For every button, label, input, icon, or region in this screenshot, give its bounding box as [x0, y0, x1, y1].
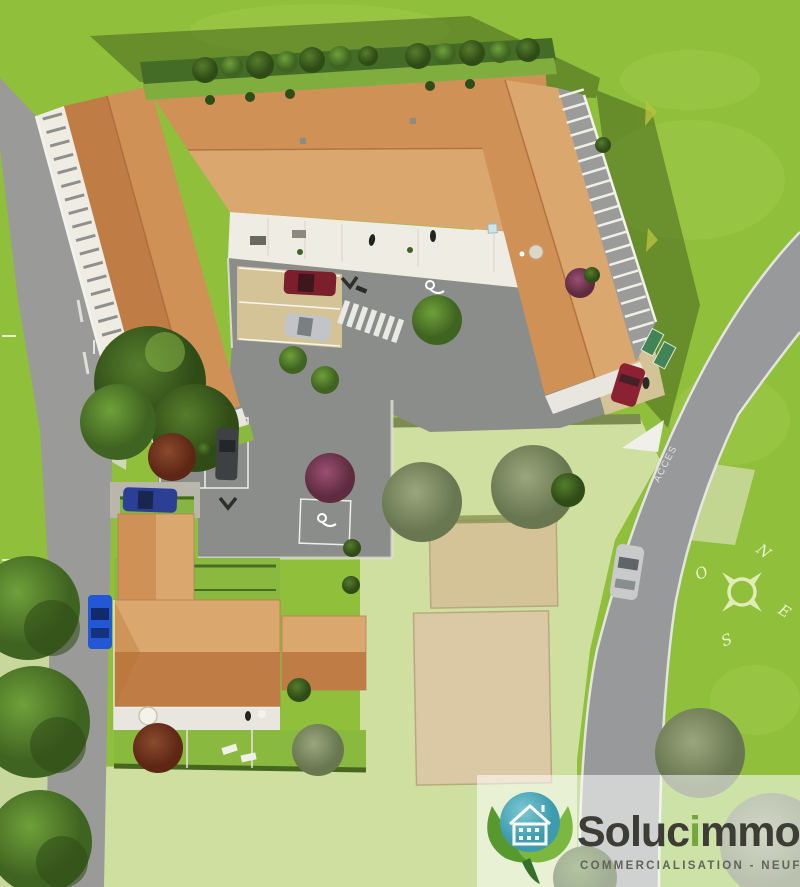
- tree-red: [148, 433, 196, 481]
- bush: [342, 576, 360, 594]
- logo-overlay: Solucimmo COMMERCIALISATION - NEUF: [477, 775, 800, 887]
- tree-olive: [382, 462, 462, 542]
- plot-rectangles: [414, 514, 558, 785]
- car-blue: [88, 595, 112, 649]
- tree-purple: [305, 453, 355, 503]
- roadside-trees-west: [0, 556, 92, 887]
- bush: [197, 442, 213, 458]
- car-blue-dark: [123, 487, 178, 513]
- brand-name: Solucimmo: [577, 808, 800, 856]
- tree: [412, 295, 462, 345]
- car-red-courtyard: [283, 270, 336, 297]
- tree: [287, 678, 311, 702]
- bush: [343, 539, 361, 557]
- tree: [279, 346, 307, 374]
- person: [643, 377, 650, 389]
- site-plan-svg: ACCES: [0, 0, 800, 887]
- person: [430, 230, 436, 242]
- tree-olive: [292, 724, 344, 776]
- bush: [595, 137, 611, 153]
- parasol-icon: [529, 245, 543, 259]
- bush: [584, 267, 600, 283]
- tree-olive: [551, 473, 585, 507]
- car-dark-slot: [215, 428, 239, 481]
- brand-tagline: COMMERCIALISATION - NEUF: [580, 860, 800, 872]
- person: [245, 711, 251, 721]
- tree: [311, 366, 339, 394]
- site-plan-render: ACCES: [0, 0, 800, 887]
- parasol-icon: [139, 707, 157, 725]
- tree-red: [133, 723, 183, 773]
